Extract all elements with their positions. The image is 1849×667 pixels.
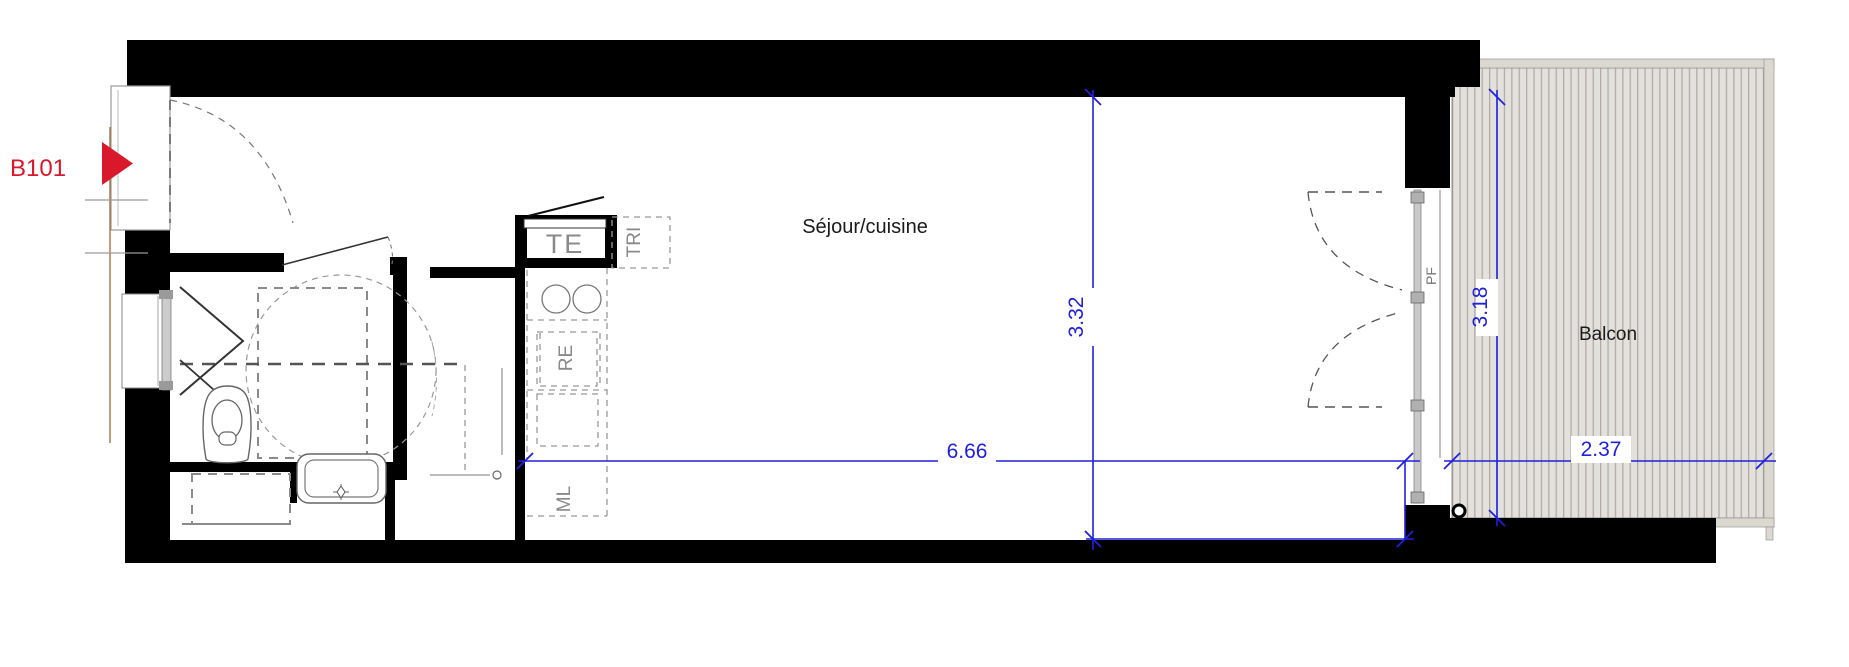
wall-bathroom-north xyxy=(168,253,284,272)
window-cap-top xyxy=(159,290,173,299)
balcony xyxy=(1452,59,1774,540)
french-door xyxy=(1308,190,1465,517)
te-flap-door xyxy=(524,219,606,228)
dim-living-width: 6.66 xyxy=(947,440,988,463)
tag-pf: PF xyxy=(1423,267,1439,285)
room-label-living: Séjour/cuisine xyxy=(802,216,928,238)
french-door-handle-4 xyxy=(1411,492,1424,503)
french-door-handle-3 xyxy=(1411,400,1424,411)
wall-bottom xyxy=(125,540,1406,563)
bathroom-door-leaf xyxy=(282,237,388,265)
toilet-flush xyxy=(219,432,236,445)
dim-living-depth: 3.32 xyxy=(1065,297,1088,338)
tag-te: TE xyxy=(546,229,585,259)
unit-label: B101 xyxy=(10,155,66,182)
wall-bathroom-east xyxy=(393,262,407,480)
balcony-column xyxy=(1453,505,1465,517)
wall-pier-balcony-bottom xyxy=(1405,505,1450,563)
nook-arc xyxy=(432,342,437,416)
wall-sink-left xyxy=(290,462,297,503)
balcony-railing-corner xyxy=(1714,518,1774,527)
vanity-unit xyxy=(192,474,290,524)
labels: B101 Séjour/cuisine Balcon TE TRI RE ML … xyxy=(10,155,1637,512)
entry xyxy=(111,86,293,230)
bathroom-window xyxy=(122,290,173,390)
balcony-railing-tail xyxy=(1766,527,1773,540)
french-door-handle-2 xyxy=(1411,292,1424,303)
burner-right xyxy=(573,285,601,313)
turning-circle xyxy=(246,275,436,465)
oven-box xyxy=(537,394,598,446)
duct-nook xyxy=(430,342,502,479)
wall-kitchen-west xyxy=(515,258,525,542)
bathroom xyxy=(180,237,463,524)
shower-symbol xyxy=(180,287,243,395)
french-door-glazing xyxy=(1414,190,1421,503)
dim-balcony-width: 2.37 xyxy=(1581,438,1622,461)
wall-top xyxy=(127,40,1455,97)
floor-plan-drawing: 6.66 2.37 3.32 3.18 B101 Séjour/cuisine … xyxy=(0,0,1849,667)
entry-door-swing-arc xyxy=(170,100,293,223)
wall-left-lower xyxy=(125,387,170,563)
door-stop xyxy=(493,471,501,479)
tag-tri: TRI xyxy=(624,227,645,258)
clearance-zone xyxy=(258,288,367,458)
room-label-balcony: Balcon xyxy=(1579,324,1637,345)
te-flap-swing xyxy=(528,197,604,216)
balcony-railing-top xyxy=(1478,59,1774,68)
door-arc-bottom xyxy=(1308,312,1402,407)
french-door-handle-1 xyxy=(1411,192,1424,203)
floor-plan-page: 6.66 2.37 3.32 3.18 B101 Séjour/cuisine … xyxy=(0,0,1849,667)
window-glazing xyxy=(162,292,171,390)
wall-pier-balcony-top xyxy=(1405,97,1450,188)
wall-duct-north xyxy=(430,267,517,278)
door-arc-top xyxy=(1308,192,1402,290)
burner-left xyxy=(542,285,570,313)
wall-top-extension xyxy=(1452,40,1480,87)
tag-re: RE xyxy=(556,345,577,371)
dim-balcony-depth: 3.18 xyxy=(1469,287,1492,328)
tag-ml: ML xyxy=(554,486,575,512)
window-cap-bottom xyxy=(159,381,173,390)
toilet xyxy=(203,386,251,463)
wall-balcony-slab xyxy=(1450,518,1716,563)
